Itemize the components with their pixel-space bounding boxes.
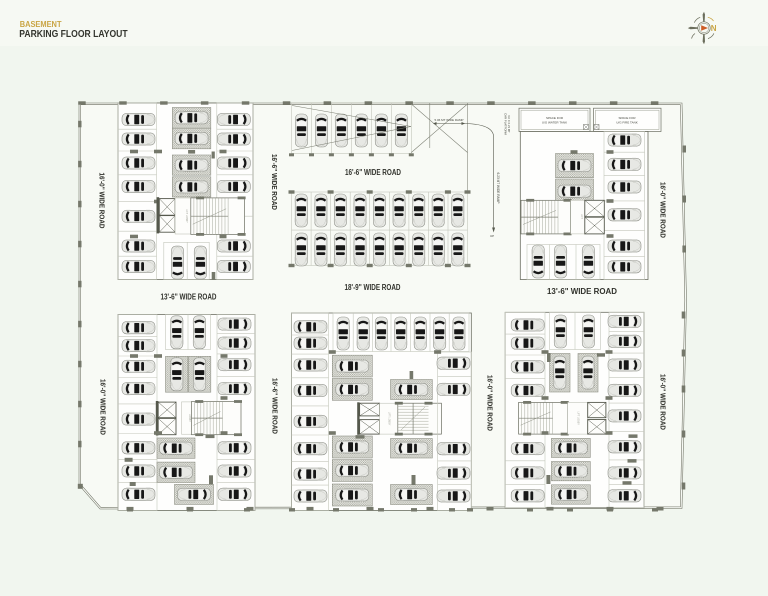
svg-text:SPACE FOR: SPACE FOR	[546, 116, 564, 120]
svg-text:16'-6" WIDE ROAD: 16'-6" WIDE ROAD	[345, 168, 401, 177]
svg-text:16'-0" WIDE ROAD: 16'-0" WIDE ROAD	[659, 182, 666, 238]
svg-text:LIFT LOBBY: LIFT LOBBY	[185, 209, 188, 223]
svg-text:N: N	[711, 24, 717, 33]
svg-text:UP: UP	[490, 234, 494, 238]
svg-text:16'-0" WIDE ROAD: 16'-0" WIDE ROAD	[659, 374, 666, 430]
svg-text:U/G FIRE TANK: U/G FIRE TANK	[616, 121, 638, 125]
svg-text:13'-6" WIDE ROAD: 13'-6" WIDE ROAD	[161, 293, 217, 302]
svg-text:6.0 X 6.23 MT: 6.0 X 6.23 MT	[507, 115, 511, 133]
svg-text:6.23 MT WIDE RAMP: 6.23 MT WIDE RAMP	[496, 173, 500, 204]
svg-text:16'-0" WIDE ROAD: 16'-0" WIDE ROAD	[486, 375, 493, 431]
svg-text:BASEMENT: BASEMENT	[20, 20, 62, 29]
svg-text:SPACE FOR: SPACE FOR	[618, 116, 636, 120]
svg-text:5.06 MT WIDE RAMP: 5.06 MT WIDE RAMP	[434, 118, 463, 122]
svg-text:LIFT LOBBY: LIFT LOBBY	[577, 411, 580, 425]
svg-text:LOBBY: LOBBY	[188, 414, 191, 422]
svg-text:16'-6" WIDE ROAD: 16'-6" WIDE ROAD	[271, 378, 278, 434]
svg-text:13'-6" WIDE ROAD: 13'-6" WIDE ROAD	[547, 287, 617, 296]
svg-text:16'-0" WIDE ROAD: 16'-0" WIDE ROAD	[98, 173, 105, 229]
svg-text:PARKING FLOOR LAYOUT: PARKING FLOOR LAYOUT	[19, 29, 128, 40]
svg-text:18'-9" WIDE ROAD: 18'-9" WIDE ROAD	[345, 283, 401, 292]
svg-text:LIFT: LIFT	[580, 214, 583, 219]
svg-text:CAR PLATFORM: CAR PLATFORM	[504, 113, 508, 135]
svg-text:U/G WATER TANK: U/G WATER TANK	[542, 121, 567, 125]
svg-text:16'-0" WIDE ROAD: 16'-0" WIDE ROAD	[99, 379, 106, 435]
svg-text:LIFT LOBBY: LIFT LOBBY	[388, 412, 391, 426]
svg-text:16'-6" WIDE ROAD: 16'-6" WIDE ROAD	[270, 154, 277, 210]
